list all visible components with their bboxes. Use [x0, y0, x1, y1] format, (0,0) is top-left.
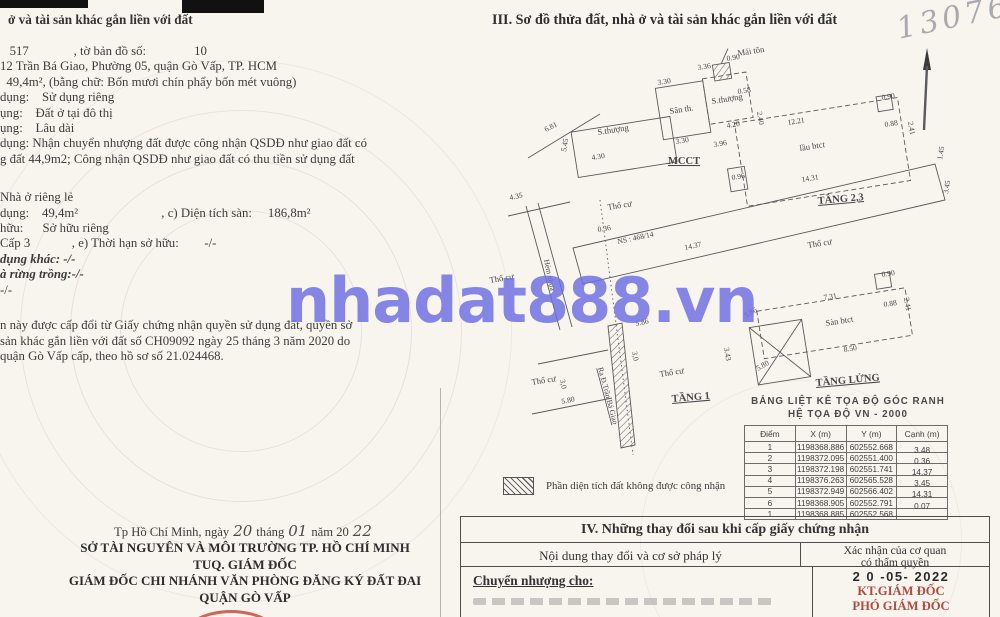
plan-label: Sàn btct: [825, 314, 855, 328]
coord-column-header: Y (m): [846, 426, 897, 442]
legend-label: Phần diện tích đất không được công nhận: [546, 480, 725, 492]
plan-label: 3.30: [657, 76, 672, 87]
document-text-line: ụng: Lâu dài: [0, 121, 478, 136]
coordinate-table-block: BẢNG LIỆT KÊ TỌA ĐỘ GÓC RANH HỆ TỌA ĐỘ V…: [744, 395, 952, 520]
plan-label: 0.90: [726, 52, 741, 63]
coord-cell: 602551.400: [846, 453, 897, 464]
coord-cell: 3.45: [897, 478, 948, 489]
coord-column-header: Điểm: [745, 426, 796, 442]
coord-row: 11198368.886602552.6683.48: [745, 442, 948, 453]
plan-label: 6.81: [543, 119, 559, 133]
plan-label: 4.35: [509, 190, 524, 202]
plan-label: 12.21: [787, 115, 805, 127]
plan-label: 3.36: [697, 61, 712, 72]
month-label: tháng: [256, 525, 284, 539]
red-seal: [178, 610, 284, 617]
scan-artifact: [182, 0, 264, 13]
plan-label: 5.45: [559, 137, 570, 152]
plan-label: 3,0: [630, 351, 641, 362]
plan-label: 3.96: [713, 138, 728, 149]
plan-label: Thổ cư: [607, 198, 633, 212]
coord-cell: 14.37: [897, 467, 948, 478]
section4-col2-header: Xác nhận của cơ quan có thẩm quyền: [801, 543, 989, 566]
coord-cell: 14.31: [897, 489, 948, 500]
coord-cell: 4: [745, 475, 796, 486]
coord-cell: 1198376.263: [795, 475, 846, 486]
plan-label: MCCT: [668, 156, 700, 167]
transfer-heading: Chuyển nhượng cho:: [473, 573, 812, 589]
plan-label: Hẻm nhựa: [542, 259, 558, 293]
plan-label: 0.90: [881, 268, 896, 279]
hatch-swatch-icon: [503, 477, 534, 495]
coord-cell: 1: [745, 442, 796, 453]
document-text-line: 517 , tờ bản đồ số: 10: [0, 44, 478, 59]
handwritten-month: 01: [288, 522, 307, 540]
date-stamp: 2 0 -05- 2022: [813, 569, 989, 584]
document-text-line: 49,4m², (bằng chữ: Bốn mươi chín phẩy bố…: [0, 75, 478, 90]
plan-label: TẦNG LỬNG: [815, 370, 880, 389]
plan-labels: S.thượngSân th.S.thượngMCCTMái tôn6.813.…: [489, 44, 953, 426]
section4-table: IV. Những thay đổi sau khi cấp giấy chứn…: [460, 516, 990, 617]
coord-cell: 602552.791: [846, 497, 897, 508]
plan-label: 1.45: [935, 145, 946, 160]
document-text-line: ụng: Đất ở tại đô thị: [0, 106, 478, 121]
plan-label: lầu btct: [799, 139, 826, 153]
document-text-line: hữu: Sở hữu riêng: [0, 221, 478, 236]
pho-giam-doc-stamp: PHÓ GIÁM ĐỐC: [813, 599, 989, 614]
scanned-certificate-page: ở và tài sản khác gắn liền với đất 517 ,…: [0, 0, 1000, 617]
plan-label: 0.88: [883, 298, 898, 309]
dim-line: [508, 202, 570, 216]
plan-label: 3,0: [558, 379, 569, 390]
plan-label: Thổ cư: [659, 365, 685, 379]
north-arrow-shaft: [924, 66, 927, 130]
coord-cell: 1198372.198: [795, 464, 846, 475]
certificate-text-block: 517 , tờ bản đồ số: 1012 Trần Bá Giao, P…: [0, 44, 478, 364]
plan-label: 0.36: [597, 223, 612, 234]
unrecognized-area-hatch: [608, 323, 635, 448]
plan-label: Mái tôn: [737, 44, 766, 58]
coord-cell: 1198368.905: [795, 497, 846, 508]
plan-label: 2.41: [902, 297, 913, 312]
boundary-line: [538, 350, 608, 364]
coord-table-title: BẢNG LIỆT KÊ TỌA ĐỘ GÓC RANH: [744, 395, 952, 408]
document-text-line: 12 Trần Bá Giao, Phường 05, quận Gò Vấp,…: [0, 59, 478, 74]
plan-label: 3.43: [722, 347, 733, 362]
plan-label: 5.80: [561, 394, 576, 406]
document-text-line: à rừng trồng:-/-: [0, 267, 478, 282]
coord-column-header: Cạnh (m): [897, 426, 948, 442]
plan-label: 5.86: [743, 305, 759, 320]
section4-confirm-cell: 2 0 -05- 2022 KT.GIÁM ĐỐC PHÓ GIÁM ĐỐC: [813, 567, 989, 617]
plan-geometry: [508, 46, 945, 455]
plan-label: Thổ cư: [489, 271, 515, 285]
signature-block: Tp Hồ Chí Minh, ngày20tháng01năm 2022 SỞ…: [25, 522, 465, 606]
coord-cell: 2: [745, 453, 796, 464]
coord-cell: 0.07: [897, 500, 948, 511]
document-text-line: dụng khác: -/-: [0, 252, 478, 267]
document-text-line: Cấp 3 , e) Thời hạn sở hữu: -/-: [0, 236, 478, 251]
document-text-line: n này được cấp đổi từ Giấy chứng nhận qu…: [0, 318, 478, 333]
coord-column-header: X (m): [795, 426, 846, 442]
plan-label: 4.20: [726, 119, 741, 130]
plan-label: 4.30: [591, 151, 606, 162]
year-label: năm 20: [311, 525, 348, 539]
plan-label: 0.88: [884, 118, 899, 129]
section4-change-cell: Chuyển nhượng cho:: [461, 567, 813, 617]
document-text-line: -/-: [0, 283, 478, 298]
handwritten-year: 22: [353, 522, 372, 540]
parcel-outline: [573, 164, 945, 284]
plan-label: 2.41: [906, 121, 917, 136]
section4-title: IV. Những thay đổi sau khi cấp giấy chứn…: [461, 517, 989, 543]
authority-org: SỞ TÀI NGUYÊN VÀ MÔI TRƯỜNG TP. HỒ CHÍ M…: [25, 540, 465, 557]
section4-col1-header: Nội dung thay đổi và cơ sở pháp lý: [461, 543, 801, 566]
plan-label: 3.30: [675, 135, 690, 146]
plan-label: 5.86: [635, 316, 650, 328]
plan-label: 14.31: [801, 172, 819, 184]
handwritten-day: 20: [233, 522, 252, 540]
document-text-line: Nhà ở riêng lẻ: [0, 190, 478, 205]
coord-cell: 602566.402: [846, 486, 897, 497]
coord-cell: 602565.528: [846, 475, 897, 486]
coordinate-table: ĐiểmX (m)Y (m)Cạnh (m) 11198368.88660255…: [744, 425, 948, 520]
authority-line4: QUẬN GÒ VẤP: [25, 590, 465, 607]
alley-edge-line: [526, 206, 560, 330]
coord-cell: 1198368.886: [795, 442, 846, 453]
void-cross-line: [749, 319, 810, 385]
authority-line3: GIÁM ĐỐC CHI NHÁNH VĂN PHÒNG ĐĂNG KÝ ĐẤT…: [25, 573, 465, 590]
plan-label: 3.45: [941, 179, 952, 194]
date-line: Tp Hồ Chí Minh, ngày20tháng01năm 2022: [25, 522, 465, 540]
coord-cell: 1198372.949: [795, 486, 846, 497]
document-text-line: dụng: Sử dụng riêng: [0, 90, 478, 105]
plan-label: NS : 468/14: [617, 229, 655, 245]
authority-line2: TUQ. GIÁM ĐỐC: [25, 557, 465, 574]
document-text-line: sản khác gắn liền với đất số CH09092 ngà…: [0, 334, 478, 349]
plan-label: TẦNG 2,3: [817, 190, 864, 207]
legend: Phần diện tích đất không được công nhận: [503, 477, 725, 495]
coord-cell: 602551.741: [846, 464, 897, 475]
coord-cell: 3.48: [897, 445, 948, 456]
plan-label: 8.50: [843, 343, 858, 354]
plan-label: TẦNG 1: [671, 389, 710, 405]
plan-label: 0.90: [881, 91, 896, 102]
plan-label: Thổ cư: [807, 236, 833, 250]
coord-cell: 5: [745, 486, 796, 497]
document-text-line: quận Gò Vấp cấp, theo hồ sơ số 21.024468…: [0, 349, 478, 364]
plan-label: Thổ cư: [531, 373, 557, 387]
kt-giam-doc-stamp: KT.GIÁM ĐỐC: [813, 584, 989, 599]
skylight-hatch-rect: [712, 62, 731, 80]
coord-cell: 1198372.095: [795, 453, 846, 464]
plan-label: Sân th.: [669, 102, 694, 116]
date-place: Tp Hồ Chí Minh, ngày: [114, 525, 229, 539]
plan-label: 7.31: [823, 291, 838, 302]
coord-cell: 6: [745, 497, 796, 508]
coord-cell: 3: [745, 464, 796, 475]
section3-title: III. Sơ đồ thửa đất, nhà ở và tài sản kh…: [492, 12, 837, 29]
coord-cell: 602552.668: [846, 442, 897, 453]
section2-header-fragment: ở và tài sản khác gắn liền với đất: [8, 12, 193, 28]
clipped-text-line: [473, 598, 773, 605]
plan-label: S.thượng: [597, 122, 630, 137]
scan-artifact: [0, 0, 88, 8]
document-text-line: g đất 44,9m2; Công nhận QSDĐ như giao đấ…: [0, 152, 478, 167]
document-text-line: dụng: 49,4m² , c) Diện tích sàn: 186,8m²: [0, 206, 478, 221]
plan-label: 2.40: [755, 111, 766, 126]
coord-table-subtitle: HỆ TỌA ĐỘ VN - 2000: [744, 408, 952, 421]
document-text-line: dụng: Nhận chuyển nhượng đất được công n…: [0, 136, 478, 151]
coord-header-row: ĐiểmX (m)Y (m)Cạnh (m): [745, 426, 948, 442]
coord-cell: 0.36: [897, 456, 948, 467]
plan-label: 14.37: [684, 240, 703, 252]
